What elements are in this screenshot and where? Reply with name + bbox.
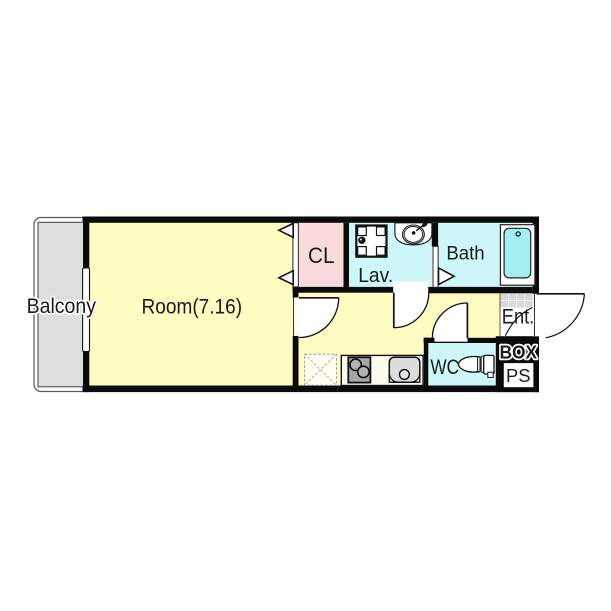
svg-text:CL: CL — [308, 243, 335, 268]
svg-text:WC: WC — [430, 356, 459, 379]
svg-text:Room(7.16): Room(7.16) — [142, 296, 243, 319]
svg-text:PS: PS — [506, 366, 531, 386]
svg-text:Balcony: Balcony — [27, 295, 97, 318]
svg-text:Bath: Bath — [446, 244, 484, 265]
svg-text:Lav.: Lav. — [358, 264, 393, 287]
svg-text:BOX: BOX — [500, 341, 538, 362]
